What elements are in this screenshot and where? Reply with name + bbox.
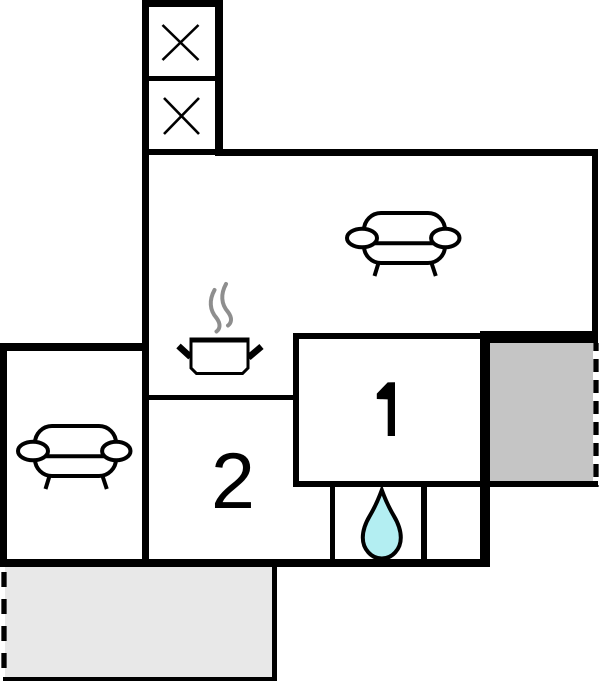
svg-text:2: 2: [211, 436, 255, 525]
